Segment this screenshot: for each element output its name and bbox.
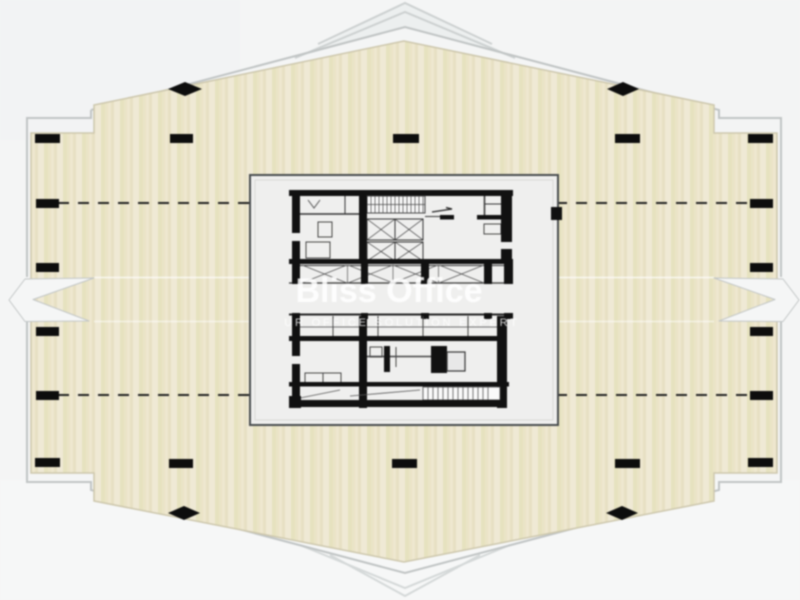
svg-text:Bliss Office: Bliss Office <box>295 272 482 310</box>
svg-text:UR OFFICE SOLUTION EXPERT: UR OFFICE SOLUTION EXPERT <box>284 317 519 329</box>
